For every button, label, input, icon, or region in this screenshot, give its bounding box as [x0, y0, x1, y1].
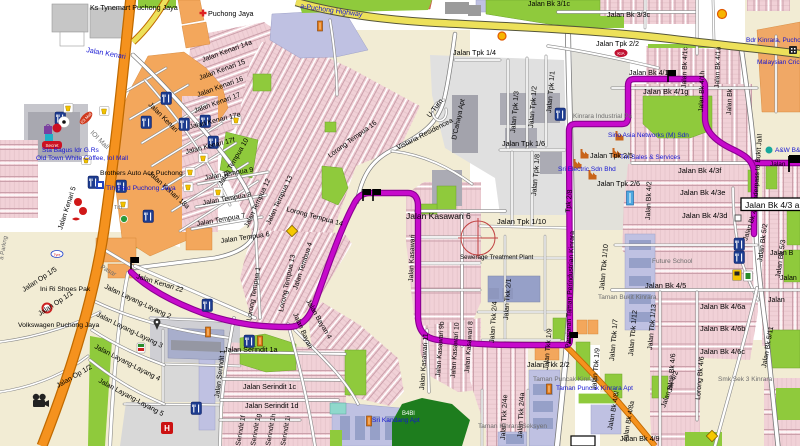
svg-text:Kinrara Industrial Pa: Kinrara Industrial Pa — [573, 113, 632, 120]
svg-text:Brothers Auto Acc Puchong: Brothers Auto Acc Puchong — [100, 170, 183, 177]
svg-text:Jalan Tpk 1/10: Jalan Tpk 1/10 — [497, 217, 546, 226]
svg-text:Trh: Trh — [114, 205, 122, 211]
svg-text:Ks Tynemart Puchong Jaya: Ks Tynemart Puchong Jaya — [90, 3, 178, 12]
svg-text:Smk Sek 3 Kinrara: Smk Sek 3 Kinrara — [718, 376, 773, 383]
svg-text:Tm Sales & Services: Tm Sales & Services — [620, 154, 681, 161]
svg-text:Jalan Bk 4/1: Jalan Bk 4/1 — [629, 68, 669, 77]
svg-text:Taman Bukit Kinrara: Taman Bukit Kinrara — [598, 294, 657, 301]
svg-text:Jalan Serindit 1d: Jalan Serindit 1d — [245, 401, 299, 410]
svg-text:Jalan Bk 4/3d: Jalan Bk 4/3d — [682, 211, 727, 220]
svg-text:Sri Kandang Apt: Sri Kandang Apt — [372, 417, 420, 424]
svg-text:KIA: KIA — [617, 51, 624, 56]
svg-text:Jalan Bk 3/3c: Jalan Bk 3/3c — [607, 10, 651, 19]
svg-text:Jalan Bk 4/3 a: Jalan Bk 4/3 a — [745, 200, 800, 210]
svg-text:Taman Puncak Kinrara: Taman Puncak Kinrara — [533, 376, 599, 383]
svg-text:Jalan Bk 4/6b: Jalan Bk 4/6b — [700, 324, 745, 333]
svg-text:Volkswagen Puchong Jaya: Volkswagen Puchong Jaya — [18, 322, 99, 329]
svg-text:Jalan Tpk 2/6: Jalan Tpk 2/6 — [597, 179, 640, 188]
svg-text:Jalan Bk 4/1c: Jalan Bk 4/1c — [681, 46, 689, 88]
svg-text:Jalan Serindit 1a: Jalan Serindit 1a — [224, 345, 278, 354]
svg-text:Jalan Bk 4/6c: Jalan Bk 4/6c — [700, 347, 745, 356]
svg-text:Jalan Bk: Jalan Bk — [726, 88, 734, 115]
svg-text:Jalan Tpk 1/4: Jalan Tpk 1/4 — [453, 48, 496, 57]
svg-text:Jalan: Jalan — [770, 161, 786, 168]
svg-text:Malaysian Cricke: Malaysian Cricke — [757, 59, 800, 66]
svg-text:Jalan Bk 4/3f: Jalan Bk 4/3f — [678, 166, 722, 175]
svg-text:Jalan Bk 4/1a: Jalan Bk 4/1a — [714, 46, 722, 88]
svg-text:Jalan Serindit 1c: Jalan Serindit 1c — [243, 382, 297, 391]
svg-text:Jalan: Jalan — [768, 297, 785, 304]
svg-text:Jalan Bk 4/2: Jalan Bk 4/2 — [645, 181, 653, 220]
svg-text:Jalan: Jalan — [780, 275, 797, 282]
svg-text:Old Town White Coffee, IoI Mal: Old Town White Coffee, IoI Mall — [36, 155, 129, 162]
svg-text:Jalan Bk 4/3e: Jalan Bk 4/3e — [680, 188, 725, 197]
svg-text:Puchong Jaya: Puchong Jaya — [208, 9, 254, 18]
svg-text:Jalan Bk 3/1c: Jalan Bk 3/1c — [528, 1, 571, 8]
svg-text:Jalan Bk 4/6a: Jalan Bk 4/6a — [700, 302, 746, 311]
svg-text:A&W B&S: A&W B&S — [775, 147, 800, 154]
svg-text:Tyre: Tyre — [54, 253, 61, 257]
svg-text:Bdr Kinrara, Puchong: Bdr Kinrara, Puchong — [746, 37, 800, 44]
svg-text:Jalan Tpk 1/6: Jalan Tpk 1/6 — [502, 139, 545, 148]
svg-text:Ini Ri Shoes Pak: Ini Ri Shoes Pak — [40, 286, 91, 293]
svg-text:B4Bl: B4Bl — [402, 411, 415, 417]
svg-text:Sino Asia Networks (M) Sdn: Sino Asia Networks (M) Sdn — [608, 132, 689, 139]
svg-text:Tih Paid Puchong Jaya: Tih Paid Puchong Jaya — [106, 185, 176, 192]
svg-text:Jalan Bk 4/9: Jalan Bk 4/9 — [620, 434, 660, 443]
svg-text:Taman Kinrara Seksyen: Taman Kinrara Seksyen — [478, 423, 547, 430]
svg-text:Sta Bagus Idr G.Rs: Sta Bagus Idr G.Rs — [42, 147, 100, 154]
svg-text:H: H — [164, 424, 170, 433]
svg-text:Sri Electric Sdn Bhd: Sri Electric Sdn Bhd — [558, 166, 616, 173]
svg-text:Jalan Bk 4/5: Jalan Bk 4/5 — [645, 281, 686, 290]
svg-text:Jalan B: Jalan B — [770, 250, 794, 257]
svg-text:Jalan Tpk 2/2: Jalan Tpk 2/2 — [596, 39, 639, 48]
svg-text:Future School: Future School — [652, 258, 693, 265]
svg-text:Sewerage Treatment Plant: Sewerage Treatment Plant — [460, 254, 534, 261]
svg-text:Jalan Bk 4/1h: Jalan Bk 4/1h — [698, 70, 706, 112]
svg-text:Jalan Kasawan 6: Jalan Kasawan 6 — [406, 211, 471, 221]
